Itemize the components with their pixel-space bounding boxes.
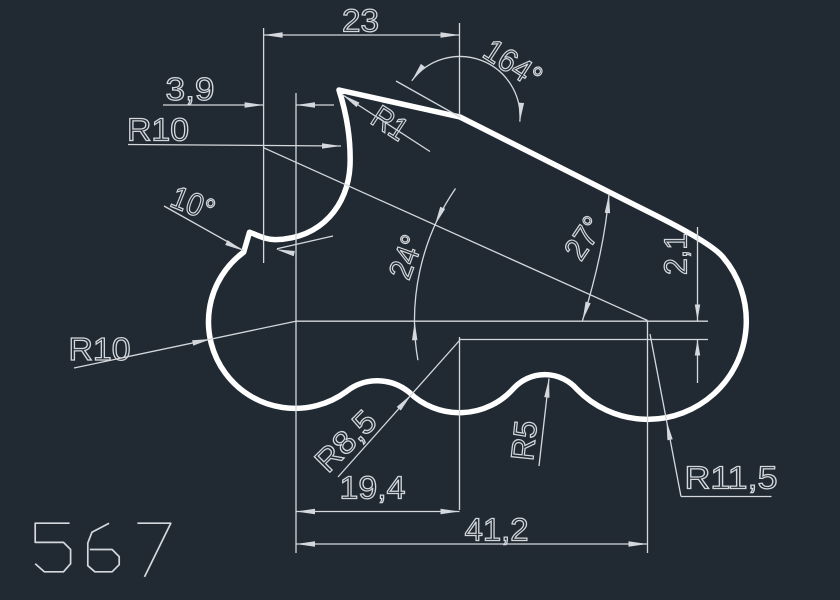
svg-text:41,2: 41,2	[465, 512, 529, 548]
svg-text:27°: 27°	[557, 210, 611, 267]
svg-text:R11,5: R11,5	[685, 460, 778, 496]
svg-text:R10: R10	[69, 331, 131, 367]
svg-text:3,9: 3,9	[166, 71, 215, 107]
svg-text:10°: 10°	[166, 179, 220, 229]
svg-text:24°: 24°	[382, 230, 431, 284]
svg-text:19,4: 19,4	[340, 470, 406, 506]
svg-text:R10: R10	[127, 112, 189, 148]
svg-text:164°: 164°	[477, 32, 549, 96]
svg-text:R5: R5	[504, 419, 544, 463]
svg-text:23: 23	[342, 3, 379, 39]
svg-text:2,1: 2,1	[658, 233, 694, 275]
